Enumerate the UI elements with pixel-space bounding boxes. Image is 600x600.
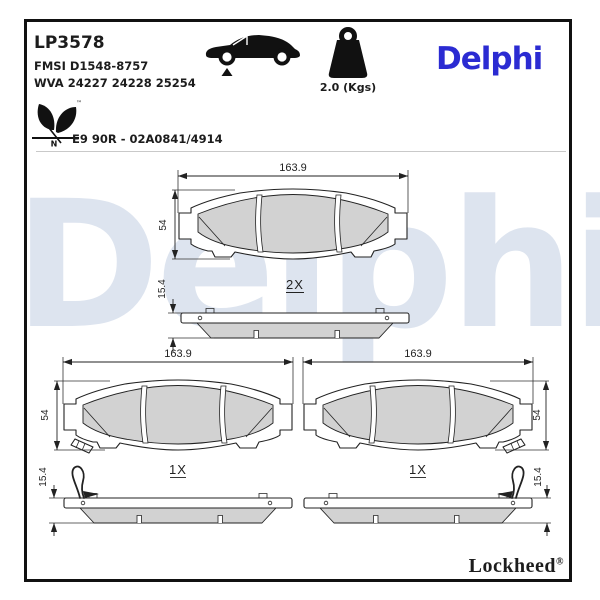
svg-text:N: N bbox=[51, 140, 58, 148]
car-front-axle-icon bbox=[203, 28, 303, 76]
header-divider bbox=[36, 151, 566, 152]
pad-side-view-top bbox=[181, 309, 409, 339]
qty-label-right: 1X bbox=[409, 462, 427, 477]
part-number: LP3578 bbox=[34, 33, 105, 53]
pad-front-view-left bbox=[64, 380, 292, 450]
brake-pad-spec-sheet: Delphi bbox=[0, 0, 600, 600]
pad-front-view-top bbox=[179, 189, 407, 259]
wear-indicator-right bbox=[497, 466, 524, 498]
dim-width-left: 163.9 bbox=[164, 348, 192, 360]
pad-side-view-right bbox=[304, 494, 532, 524]
pad-side-view-left bbox=[64, 494, 292, 524]
fmsi-reference: FMSI D1548-8757 bbox=[34, 59, 148, 73]
dim-width-right: 163.9 bbox=[404, 348, 432, 360]
lockheed-text: Lockheed bbox=[469, 555, 556, 577]
wva-reference: WVA 24227 24228 25254 bbox=[34, 76, 196, 90]
dim-thickness-right: 15.4 bbox=[533, 467, 544, 487]
delphi-logo: Delphi bbox=[436, 41, 542, 77]
weight-kg-icon bbox=[322, 27, 374, 81]
weight-value: 2.0 (Kgs) bbox=[300, 81, 396, 94]
qty-label-top: 2X bbox=[286, 277, 304, 292]
wear-indicator-left bbox=[72, 466, 99, 498]
dim-height-top: 54 bbox=[158, 219, 169, 231]
dim-height-right: 54 bbox=[532, 409, 543, 421]
pad-front-view-right bbox=[304, 380, 532, 450]
lockheed-brand: Lockheed® bbox=[469, 555, 564, 578]
dim-height-left: 54 bbox=[40, 409, 51, 421]
registered-mark: ® bbox=[556, 556, 564, 567]
svg-text:™: ™ bbox=[76, 100, 82, 107]
ece-approval-number: E9 90R - 02A0841/4914 bbox=[72, 132, 223, 146]
qty-label-left: 1X bbox=[169, 462, 187, 477]
dim-width-top: 163.9 bbox=[279, 162, 307, 174]
dim-thickness-left: 15.4 bbox=[38, 467, 49, 487]
dim-thickness-top: 15.4 bbox=[157, 279, 168, 299]
